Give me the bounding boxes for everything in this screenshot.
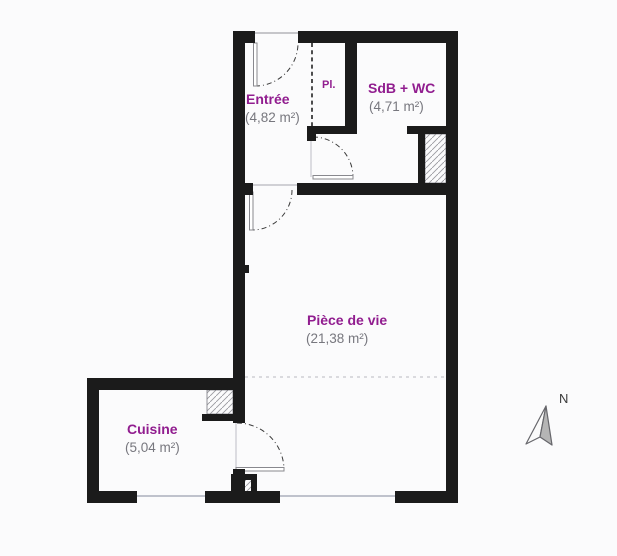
entrance-door-leaf — [254, 43, 258, 86]
wall-cuisine-duct-bar — [202, 414, 245, 421]
cuisine-door-arc — [237, 423, 284, 470]
entrance-door-arc — [255, 43, 298, 86]
room-label-cuisine: Cuisine — [127, 421, 178, 437]
wall-top-right-segment — [298, 31, 458, 43]
wall-left-upper — [233, 31, 245, 423]
sdb-door-leaf — [313, 176, 353, 180]
wall-bottom-duct-left — [231, 480, 234, 492]
wall-cuisine-left — [87, 378, 99, 503]
wall-bottom-right-segment — [395, 491, 458, 503]
wall-cuisine-top — [87, 378, 245, 390]
room-label-sdb-wc: SdB + WC — [368, 80, 435, 96]
north-label: N — [559, 391, 568, 406]
wall-left-nub — [245, 265, 249, 273]
north-arrow-icon — [526, 406, 552, 445]
room-label-placard: Pl. — [322, 79, 335, 92]
wall-placard-stub — [307, 126, 316, 141]
sdb-door-arc — [313, 137, 353, 177]
duct-hatch-sdb — [425, 134, 446, 183]
room-label-piece-de-vie: Pièce de vie — [307, 312, 387, 328]
wall-mid-right-segment — [297, 183, 458, 195]
area-label-entree: (4,82 m²) — [245, 110, 300, 126]
wall-right — [446, 31, 458, 503]
wall-sdb-duct-top — [407, 126, 446, 134]
wall-sdb-duct-left — [418, 134, 425, 183]
area-label-cuisine: (5,04 m²) — [125, 440, 180, 456]
duct-hatch-cuisine — [207, 390, 233, 414]
entree-door-arc — [252, 190, 292, 230]
wall-mid-left-segment — [233, 183, 253, 195]
room-label-entree: Entrée — [246, 91, 290, 107]
area-label-sdb-wc: (4,71 m²) — [369, 99, 424, 115]
wall-sdb-left — [345, 43, 357, 131]
floor-plan: Entrée (4,82 m²) SdB + WC (4,71 m²) Pl. … — [0, 0, 617, 556]
wall-bottom-duct-right — [251, 480, 257, 492]
wall-bottom-mid-segment — [205, 491, 280, 503]
wall-cuisine-bottom — [87, 491, 137, 503]
entree-door-leaf — [250, 192, 254, 230]
area-label-piece-de-vie: (21,38 m²) — [306, 331, 368, 347]
